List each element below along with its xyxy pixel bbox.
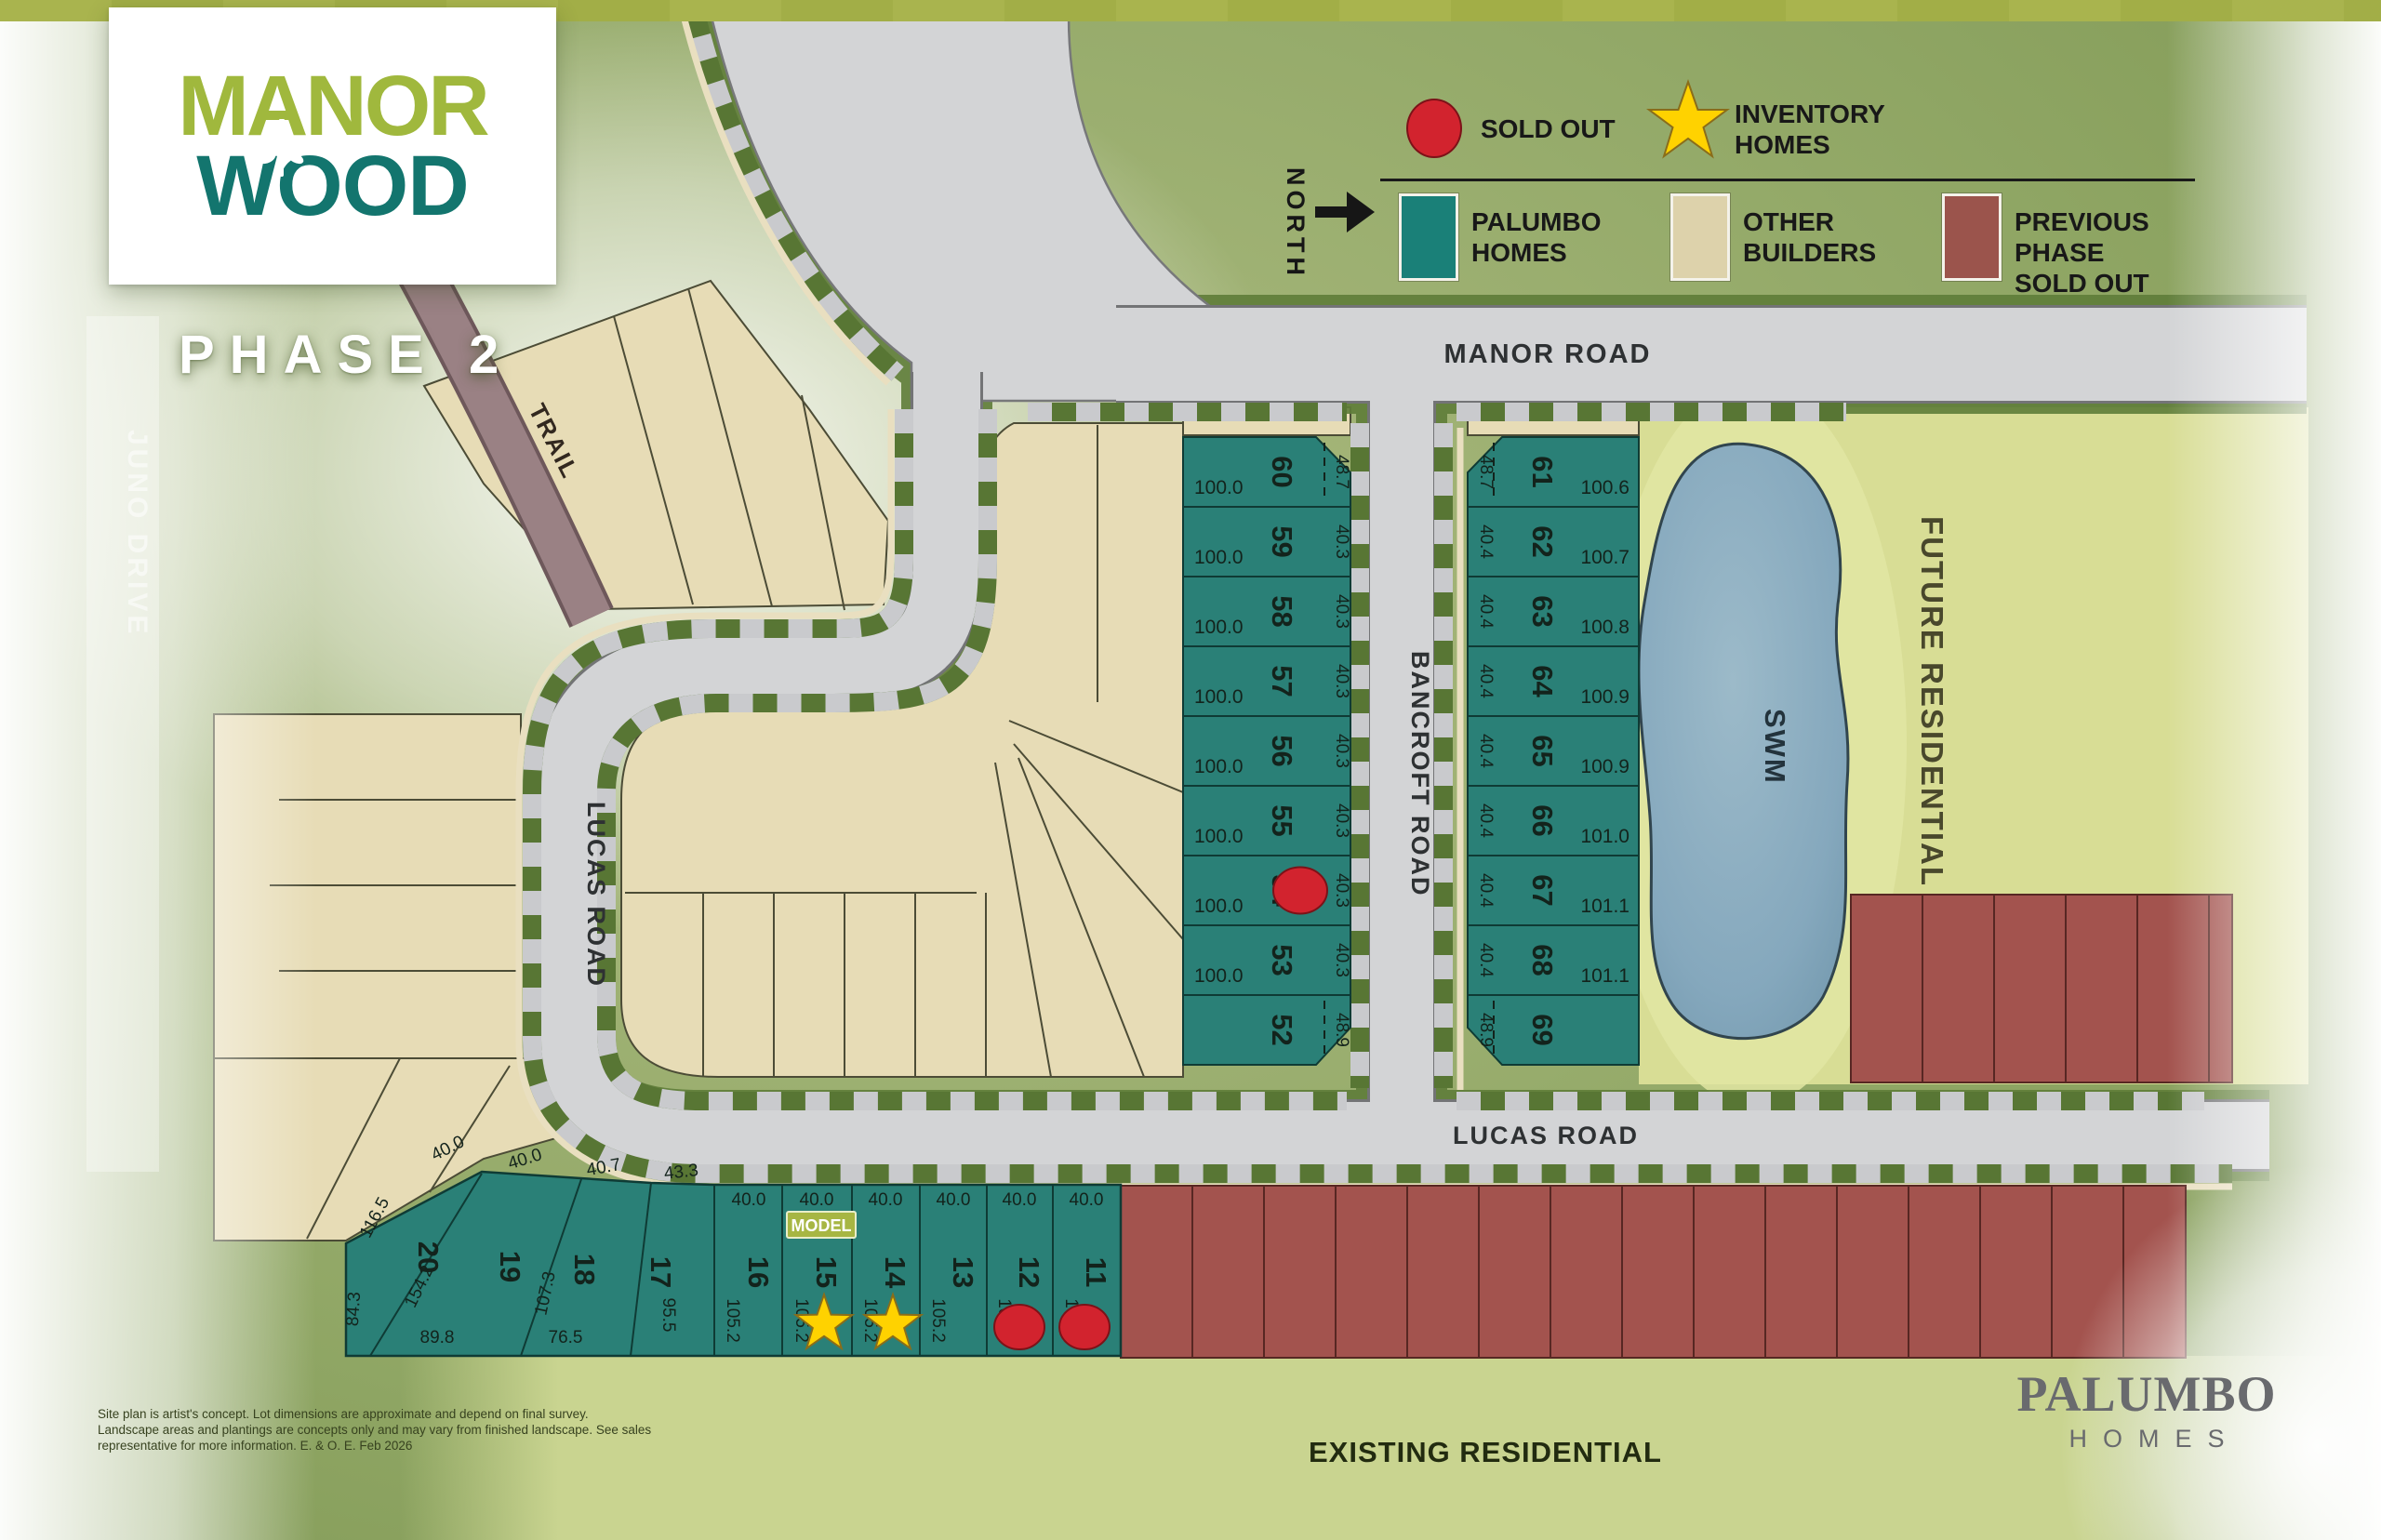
lot-number: 59 (1266, 525, 1298, 557)
lot-depth: 101.1 (1580, 965, 1629, 987)
swm-pond (1639, 444, 1848, 1038)
palumbo-homes-swatch (1399, 193, 1458, 281)
lot-dimension: 84.3 (343, 1291, 366, 1326)
lot-number: 61 (1526, 456, 1559, 487)
palumbo-logo-suffix: HOMES (1979, 1425, 2314, 1454)
lot-number: 65 (1526, 735, 1559, 766)
inventory-star-icon (1646, 78, 1730, 162)
lot-frontage: 40.4 (1476, 873, 1496, 908)
phase-title: PHASE 2 (179, 324, 513, 386)
logo-manor-text: MANOR (178, 66, 487, 146)
lot-depth: 100.0 (1194, 826, 1244, 847)
lot-depth: 100.0 (1194, 686, 1244, 708)
lot-frontage: 40.3 (1332, 664, 1351, 698)
lot-frontage: 48.9 (1476, 1013, 1496, 1047)
lot-number: 63 (1526, 595, 1559, 627)
lot-number: 16 (742, 1256, 775, 1288)
lot-number: 57 (1266, 665, 1298, 697)
disclaimer-text: Site plan is artist's concept. Lot dimen… (98, 1406, 651, 1454)
legend-palumbo-label: PALUMBO HOMES (1471, 206, 1601, 268)
north-label: NORTH (1281, 167, 1310, 280)
lot-depth: 100.0 (1194, 896, 1244, 917)
lot-dimension: 76.5 (549, 1328, 583, 1347)
model-badge-label: MODEL (791, 1216, 852, 1235)
lot-frontage: 40.0 (732, 1190, 766, 1210)
lot-depth: 100.0 (1194, 477, 1244, 498)
legend-inventory-label: INVENTORY HOMES (1735, 99, 1885, 160)
bottom-right-fade (1953, 1069, 2381, 1540)
lot-frontage: 40.0 (800, 1190, 834, 1210)
lot-frontage: 40.4 (1476, 594, 1496, 629)
lot-dimension: 105.2 (928, 1298, 948, 1343)
palumbo-logo-name: PALUMBO (1979, 1365, 2314, 1423)
lot-number: 12 (1013, 1256, 1045, 1288)
lot-frontage: 40.0 (869, 1190, 903, 1210)
leaf-icon (258, 119, 306, 177)
lots-east-column: 6148.7100.66240.4100.76340.4100.86440.41… (1468, 437, 1639, 1065)
lot-depth: 100.9 (1580, 756, 1629, 777)
lot-depth: 100.0 (1194, 617, 1244, 638)
lot-number: 11 (1080, 1257, 1112, 1288)
lot-number: 64 (1526, 665, 1559, 697)
lot-depth: 100.8 (1580, 617, 1629, 638)
sold-out-icon (1273, 868, 1327, 914)
lot-frontage: 40.3 (1332, 594, 1351, 629)
lot-frontage: 40.4 (1476, 524, 1496, 559)
sold-out-icon (1406, 99, 1462, 158)
legend-sold-out-label: SOLD OUT (1481, 113, 1616, 144)
previous-phase-swatch (1942, 193, 2002, 281)
disclaimer-line-1: Site plan is artist's concept. Lot dimen… (98, 1406, 651, 1422)
manorwood-logo-card: MANOR WOOD (109, 7, 556, 285)
disclaimer-line-2: Landscape areas and plantings are concep… (98, 1422, 651, 1438)
lot-number: 15 (810, 1256, 843, 1288)
lot-number: 58 (1266, 595, 1298, 627)
legend-other-builders-label: OTHER BUILDERS (1743, 206, 1876, 268)
lot-number: 18 (568, 1254, 601, 1285)
lot-number: 60 (1266, 456, 1298, 487)
lucas-road-vertical-label: LUCAS ROAD (582, 802, 610, 988)
lot-depth: 100.0 (1194, 965, 1244, 987)
lot-frontage: 40.4 (1476, 664, 1496, 698)
lot-frontage: 43.3 (663, 1161, 699, 1184)
future-residential-label: FUTURE RESIDENTIAL (1915, 516, 1949, 887)
lot-dimension: 95.5 (658, 1298, 678, 1333)
lot-number: 66 (1526, 804, 1559, 836)
lot-frontage: 48.7 (1332, 455, 1351, 489)
lot-depth: 101.1 (1580, 896, 1629, 917)
other-builders-swatch (1670, 193, 1730, 281)
lot-number: 62 (1526, 525, 1559, 557)
bancroft-road-label: BANCROFT ROAD (1406, 651, 1434, 896)
lot-number: 67 (1526, 874, 1559, 906)
sold-out-icon (1059, 1305, 1110, 1349)
lot-frontage: 40.0 (937, 1190, 971, 1210)
lot-number: 52 (1266, 1014, 1298, 1045)
lot-frontage: 40.0 (1070, 1190, 1104, 1210)
lot-frontage: 40.3 (1332, 734, 1351, 768)
sold-out-icon (994, 1305, 1044, 1349)
lot-depth: 100.0 (1194, 547, 1244, 568)
legend-divider (1380, 179, 2195, 181)
lot-frontage: 40.4 (1476, 943, 1496, 977)
lot-frontage: 40.3 (1332, 524, 1351, 559)
map-legend: SOLD OUT INVENTORY HOMES PALUMBO HOMES O… (1367, 74, 2209, 288)
lot-frontage: 40.3 (1332, 873, 1351, 908)
site-plan-page: 6048.7100.05940.3100.05840.3100.05740.31… (0, 0, 2381, 1540)
north-arrow-icon (1315, 190, 1377, 236)
lot-frontage: 48.7 (1476, 455, 1496, 489)
lot-frontage: 40.4 (1476, 803, 1496, 838)
lot-number: 17 (645, 1256, 677, 1288)
lucas-road-horizontal-label: LUCAS ROAD (1453, 1122, 1639, 1149)
lot-number: 53 (1266, 944, 1298, 976)
lot-frontage: 40.4 (1476, 734, 1496, 768)
lot-number: 69 (1526, 1014, 1559, 1045)
lot-number: 14 (879, 1256, 911, 1289)
lot-depth: 100.9 (1580, 686, 1629, 708)
lot-number: 56 (1266, 735, 1298, 766)
lots-west-column: 6048.7100.05940.3100.05840.3100.05740.31… (1183, 437, 1351, 1065)
lot-depth: 101.0 (1580, 826, 1629, 847)
legend-previous-phase-label: PREVIOUS PHASE SOLD OUT (2015, 206, 2209, 299)
lot-depth: 100.7 (1580, 547, 1629, 568)
disclaimer-line-3: representative for more information. E. … (98, 1438, 651, 1454)
lot-depth: 100.6 (1580, 477, 1629, 498)
lot-number: 19 (494, 1251, 526, 1282)
lot-frontage: 40.0 (1003, 1190, 1037, 1210)
lot-number: 68 (1526, 944, 1559, 976)
manor-road-label: MANOR ROAD (1444, 339, 1652, 369)
lot-dimension: 105.2 (723, 1298, 742, 1343)
palumbo-homes-logo: PALUMBO HOMES (1979, 1365, 2314, 1454)
lot-number: 55 (1266, 804, 1298, 836)
lot-frontage: 48.9 (1332, 1013, 1351, 1047)
lot-depth: 100.0 (1194, 756, 1244, 777)
existing-residential-label: EXISTING RESIDENTIAL (1309, 1436, 1662, 1468)
lot-frontage: 40.3 (1332, 943, 1351, 977)
swm-label: SWM (1759, 709, 1791, 785)
lot-dimension: 89.8 (420, 1328, 455, 1347)
lot-frontage: 40.3 (1332, 803, 1351, 838)
logo-wood-text: WOOD (196, 146, 468, 226)
lot-number: 13 (947, 1256, 979, 1288)
